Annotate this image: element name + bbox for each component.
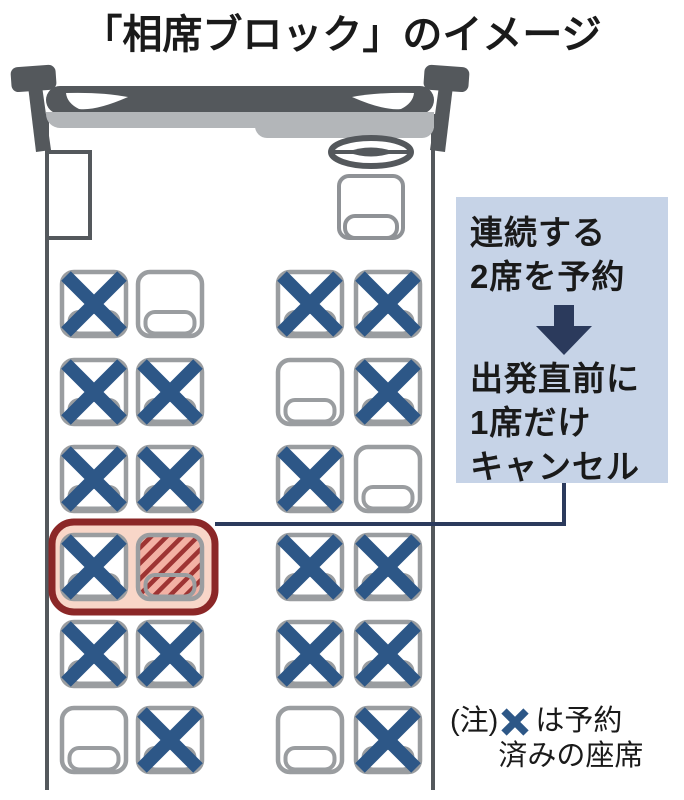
seat-booked <box>356 708 420 772</box>
seat-booked <box>62 447 126 511</box>
seat-empty <box>62 708 126 772</box>
callout-box: 連続する 2席を予約 出発直前に 1席だけ キャンセル <box>456 197 668 483</box>
callout-step2: 出発直前に 1席だけ キャンセル <box>470 357 662 489</box>
seat-canceled <box>138 535 202 599</box>
seat-booked <box>62 360 126 424</box>
seat-booked <box>356 622 420 686</box>
callout-step1: 連続する 2席を予約 <box>470 211 662 299</box>
seat-empty <box>278 708 342 772</box>
seat-booked <box>278 447 342 511</box>
note-body: は予約 済みの座席 <box>498 704 643 774</box>
seat-booked <box>62 535 126 599</box>
seat-empty <box>356 447 420 511</box>
seat-booked <box>62 272 126 336</box>
driver-seat <box>339 176 403 238</box>
seat-booked <box>138 447 202 511</box>
legend-note: (注) は予約 済みの座席 <box>450 704 643 774</box>
seat-booked <box>138 360 202 424</box>
seat-booked <box>356 272 420 336</box>
seat-booked <box>278 622 342 686</box>
note-line2-text: 済みの座席 <box>498 739 643 774</box>
seat-booked <box>62 622 126 686</box>
seat-empty <box>138 272 202 336</box>
front-door <box>47 152 90 238</box>
seat-booked <box>356 360 420 424</box>
steering-wheel-icon <box>331 138 411 166</box>
booked-seat-x-icon <box>500 707 530 737</box>
seat-booked <box>138 708 202 772</box>
dashboard-right <box>255 112 434 138</box>
note-line1-text: は予約 <box>535 704 622 739</box>
seat-empty <box>278 360 342 424</box>
down-arrow-icon <box>536 305 592 355</box>
note-prefix: (注) <box>450 704 498 739</box>
note-line1: は予約 <box>498 704 643 739</box>
seat-booked <box>356 535 420 599</box>
seat-booked <box>278 272 342 336</box>
infographic-canvas: 「相席ブロック」のイメージ <box>0 0 684 800</box>
seat-booked <box>278 535 342 599</box>
seat-booked <box>138 622 202 686</box>
